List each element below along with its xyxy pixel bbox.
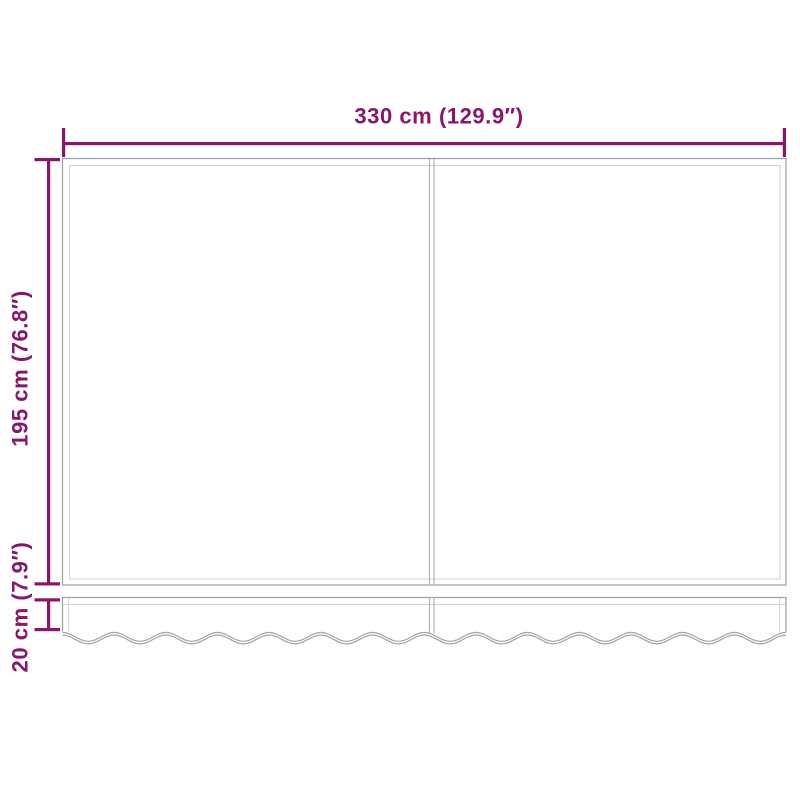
svg-text:20 cm (7.9″): 20 cm (7.9″): [8, 542, 33, 673]
svg-text:330 cm (129.9″): 330 cm (129.9″): [354, 104, 523, 129]
svg-text:195 cm (76.8″): 195 cm (76.8″): [8, 290, 33, 446]
